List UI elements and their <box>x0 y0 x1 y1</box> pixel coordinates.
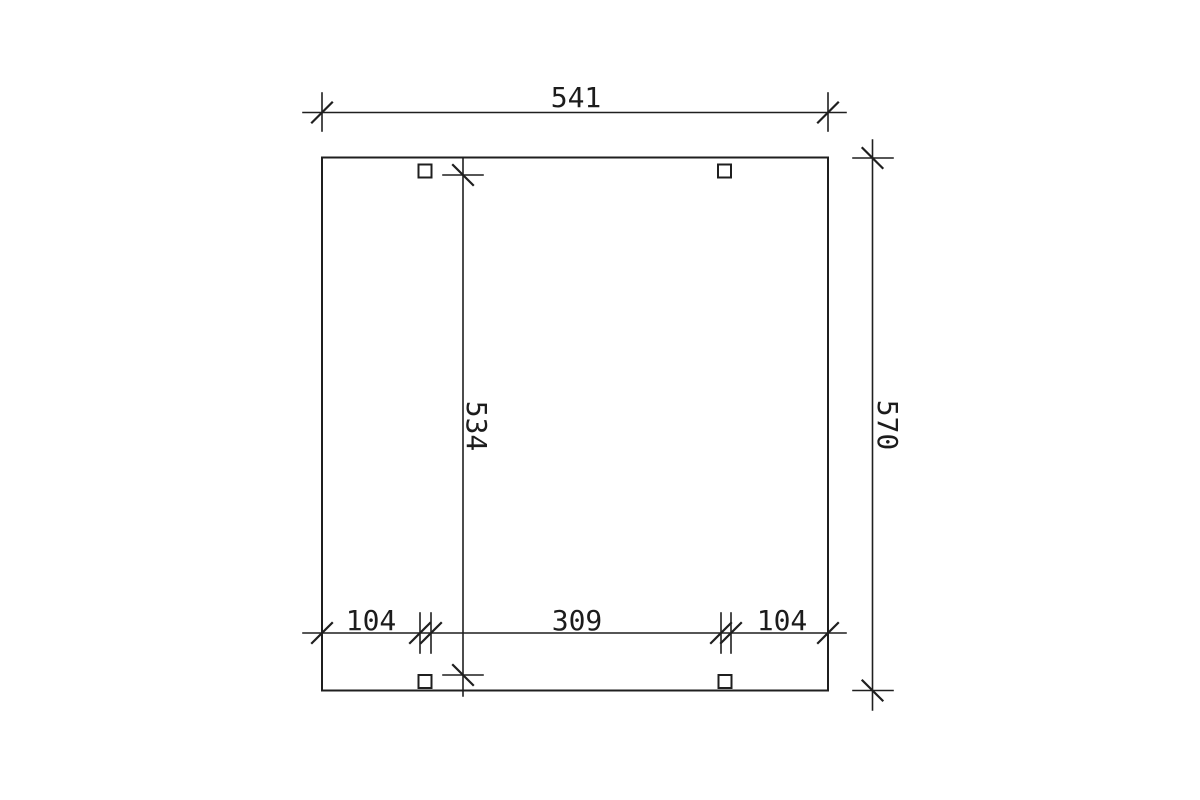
post-bottom-left <box>419 675 432 688</box>
post-top-left <box>419 165 432 178</box>
drawing-page: 541 570 534 104 309 104 <box>0 0 1200 800</box>
dim-label-bottom-right-offset: 104 <box>757 607 808 635</box>
plan-drawing-canvas <box>0 0 1200 800</box>
dim-label-overall-width: 541 <box>551 84 602 112</box>
dim-label-bottom-left-offset: 104 <box>346 607 397 635</box>
dim-label-inner-depth: 534 <box>462 401 490 452</box>
dim-label-overall-depth: 570 <box>873 400 901 451</box>
dim-label-bottom-center-span: 309 <box>552 607 603 635</box>
post-top-right <box>718 165 731 178</box>
post-bottom-right <box>719 675 732 688</box>
